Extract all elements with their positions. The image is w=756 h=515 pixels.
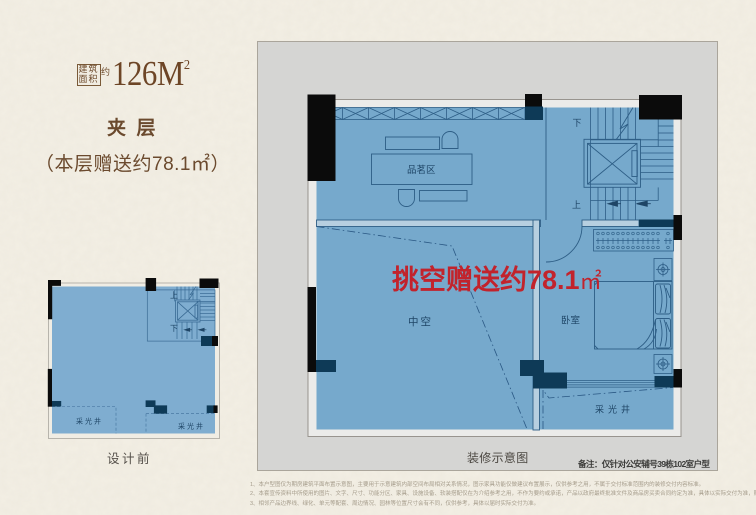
svg-text:品茗区: 品茗区 [407,165,436,176]
svg-text:上: 上 [170,291,178,300]
svg-text:下: 下 [573,118,582,128]
svg-text:采光井: 采光井 [595,404,634,415]
svg-text:采光井: 采光井 [76,417,103,426]
svg-text:中空: 中空 [408,315,433,328]
svg-text:卧室: 卧室 [561,315,580,327]
svg-text:上: 上 [572,200,581,210]
svg-text:下: 下 [170,324,178,333]
svg-text:采光井: 采光井 [178,422,205,431]
